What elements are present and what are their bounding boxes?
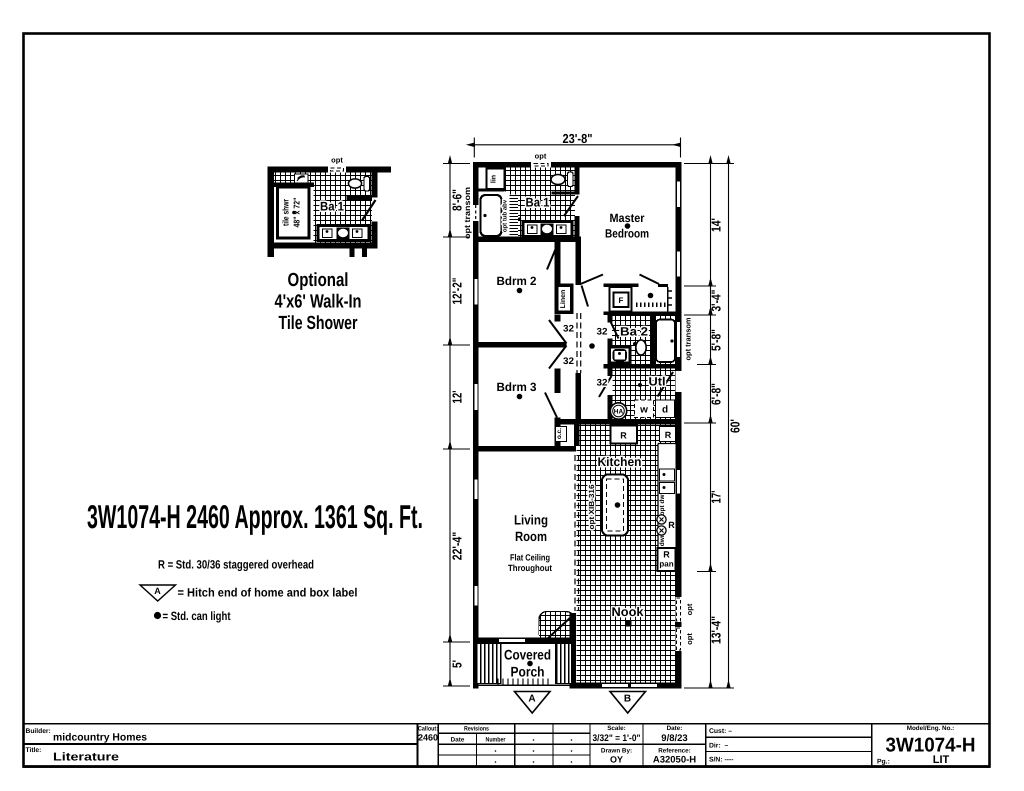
svg-text:opt: opt [685, 633, 694, 645]
svg-text:14': 14' [709, 218, 724, 232]
svg-text:32: 32 [563, 324, 574, 335]
svg-text:pan: pan [659, 560, 673, 569]
svg-text:60': 60' [728, 419, 743, 433]
svg-text:Living: Living [514, 513, 548, 528]
svg-text:A: A [154, 586, 161, 596]
svg-text:Date: Date [451, 737, 465, 744]
svg-text:Model/Eng. No.:: Model/Eng. No.: [907, 725, 955, 732]
svg-text:Utl: Utl [649, 375, 666, 389]
svg-text:Bdrm 2: Bdrm 2 [497, 274, 537, 288]
svg-text:Optional: Optional [288, 270, 349, 291]
svg-text:opt: opt [685, 603, 694, 615]
svg-text:6'-8": 6'-8" [709, 383, 724, 405]
svg-text:o.c.: o.c. [556, 428, 563, 439]
svg-text:2460: 2460 [418, 733, 438, 743]
svg-text:A32050-H: A32050-H [653, 755, 696, 766]
svg-text:Literature: Literature [53, 751, 119, 763]
svg-text:Covered: Covered [504, 647, 551, 663]
svg-text:Date:: Date: [667, 725, 683, 732]
svg-text:Callout:: Callout: [418, 726, 438, 733]
svg-text:13'-4": 13'-4" [709, 616, 724, 644]
svg-text:dwr: dwr [659, 534, 666, 546]
svg-text:Ba 1: Ba 1 [320, 200, 344, 214]
svg-text:Bedroom: Bedroom [605, 227, 649, 241]
svg-text:opt dw: opt dw [659, 494, 666, 516]
svg-text:F: F [619, 296, 624, 305]
svg-text:d: d [662, 405, 668, 416]
svg-text:R: R [663, 550, 670, 560]
svg-text:Dir: –: Dir: – [709, 743, 728, 750]
svg-text:32: 32 [597, 327, 608, 338]
svg-text:3W1074-H 2460 Approx. 1361 Sq.: 3W1074-H 2460 Approx. 1361 Sq. Ft. [87, 498, 423, 535]
svg-text:Porch: Porch [511, 664, 545, 680]
svg-text:9/8/23: 9/8/23 [661, 733, 687, 744]
svg-text:17': 17' [709, 491, 724, 504]
svg-text:Title:: Title: [26, 747, 42, 754]
svg-text:Ba 2: Ba 2 [620, 325, 648, 339]
svg-text:Ba 1: Ba 1 [526, 196, 550, 210]
svg-text:Flat Ceiling: Flat Ceiling [510, 553, 550, 563]
svg-text:Builder:: Builder: [26, 728, 51, 735]
svg-text:Master: Master [610, 211, 645, 225]
svg-text:Scale:: Scale: [607, 725, 626, 732]
svg-text:Cust: –: Cust: – [709, 728, 732, 735]
svg-text:R: R [665, 430, 672, 440]
svg-text:tile shwr: tile shwr [281, 198, 291, 226]
svg-text:Number: Number [486, 737, 506, 744]
svg-text:Kitchen: Kitchen [598, 455, 642, 469]
svg-text:midcountry Homes: midcountry Homes [53, 732, 147, 744]
svg-text:opt transom: opt transom [684, 317, 693, 360]
svg-text:3W1074-H: 3W1074-H [886, 735, 976, 757]
svg-text:w: w [639, 405, 648, 416]
svg-text:3/32" = 1'-0": 3/32" = 1'-0" [593, 733, 641, 744]
svg-text:32: 32 [597, 378, 608, 389]
svg-text:12': 12' [450, 391, 465, 404]
svg-text:OY: OY [610, 755, 623, 765]
svg-text:Reference:: Reference: [658, 748, 691, 755]
svg-text:B: B [624, 694, 631, 705]
svg-text:R: R [620, 431, 627, 441]
svg-text:Revisions: Revisions [464, 726, 489, 733]
svg-text:4'x6' Walk-In: 4'x6' Walk-In [275, 292, 362, 313]
svg-text:3'-4": 3'-4" [709, 290, 724, 312]
svg-text:LIT: LIT [933, 754, 950, 766]
svg-text:HA: HA [614, 409, 624, 416]
svg-text:S/N: ----: S/N: ---- [709, 757, 734, 764]
svg-text:32: 32 [563, 356, 574, 367]
svg-text:A: A [528, 694, 535, 705]
svg-text:23'-8": 23'-8" [563, 131, 593, 146]
svg-text:R = Std. 30/36 staggered overh: R = Std. 30/36 staggered overhead [158, 558, 314, 572]
svg-text:Throughout: Throughout [508, 563, 552, 573]
svg-text:opt: opt [331, 156, 343, 165]
svg-text:5'-8": 5'-8" [709, 329, 724, 351]
svg-text:Drawn By:: Drawn By: [601, 748, 632, 755]
svg-text:= Hitch end of home and box la: = Hitch end of home and box label [178, 586, 358, 600]
svg-text:= Std. can light: = Std. can light [163, 609, 231, 623]
svg-text:opt transom: opt transom [463, 187, 472, 239]
svg-text:opt: opt [535, 152, 547, 161]
svg-text:opt XIB-316: opt XIB-316 [587, 485, 596, 530]
svg-text:12'-2": 12'-2" [450, 278, 465, 305]
svg-text:lin: lin [490, 175, 498, 183]
svg-text:Bdrm 3: Bdrm 3 [497, 380, 537, 394]
svg-text:Pg.:: Pg.: [877, 759, 890, 766]
svg-text:opt tub abv: opt tub abv [502, 199, 509, 232]
svg-text:Room: Room [515, 529, 547, 544]
svg-text:5': 5' [450, 660, 465, 668]
svg-text:Nook: Nook [612, 605, 644, 619]
svg-text:22'-4": 22'-4" [450, 532, 465, 561]
svg-text:R: R [668, 520, 675, 530]
svg-text:Linen: Linen [559, 290, 567, 309]
svg-text:Tile Shower: Tile Shower [279, 313, 358, 334]
